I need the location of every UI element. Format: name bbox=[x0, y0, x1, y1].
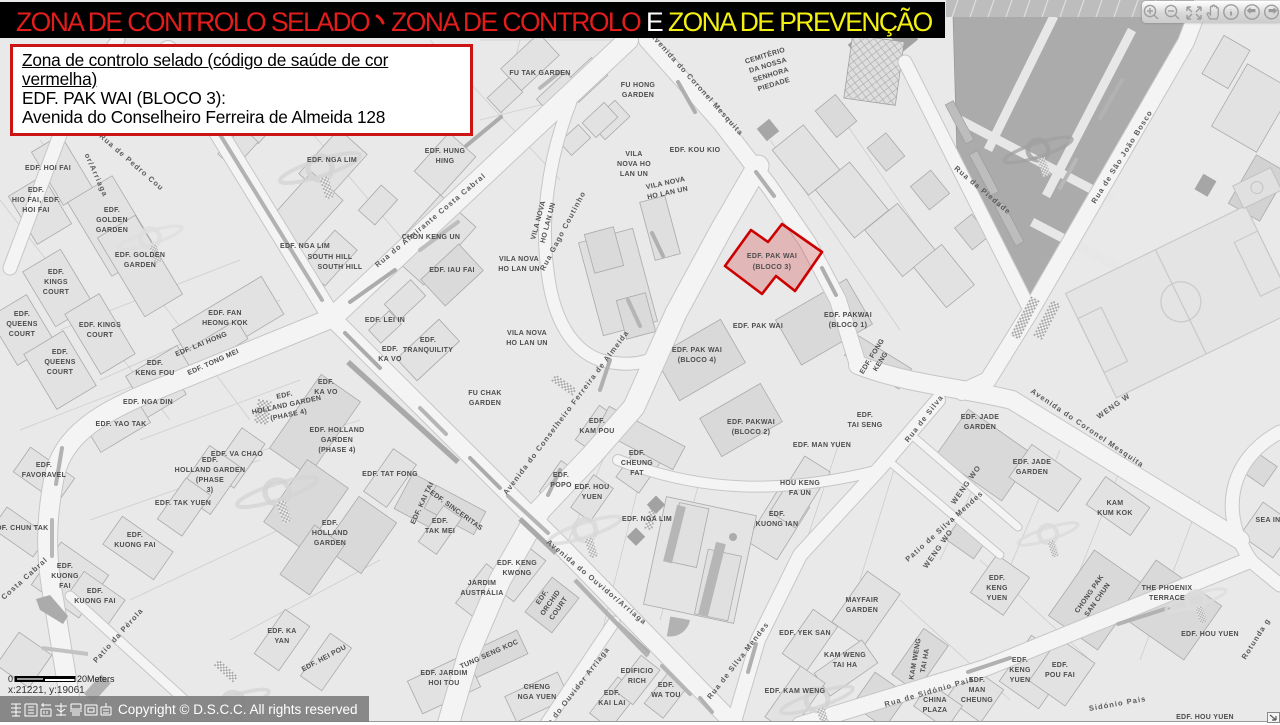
svg-text:EDF. HOI FAI: EDF. HOI FAI bbox=[25, 165, 71, 172]
svg-text:EDF.KENGYUEN: EDF.KENGYUEN bbox=[1009, 657, 1031, 684]
svg-text:EDF.KENGYUEN: EDF.KENGYUEN bbox=[986, 575, 1008, 602]
svg-text:0: 0 bbox=[8, 674, 13, 684]
svg-text:EDF. KOU KIO: EDF. KOU KIO bbox=[670, 147, 721, 154]
svg-text:EDF. NGA LIM: EDF. NGA LIM bbox=[307, 157, 357, 164]
svg-text:EDF. LEI IN: EDF. LEI IN bbox=[365, 317, 405, 324]
svg-text:EDF. KAM WENG: EDF. KAM WENG bbox=[765, 688, 826, 695]
svg-text:EDF. VA CHAO: EDF. VA CHAO bbox=[211, 451, 263, 458]
svg-text:EDF. YEK SAN: EDF. YEK SAN bbox=[779, 630, 831, 637]
svg-text:EDF. HOU YUEN: EDF. HOU YUEN bbox=[1181, 631, 1239, 638]
svg-text:EDF. TAK YUEN: EDF. TAK YUEN bbox=[155, 500, 211, 507]
svg-text:EDF. CHUN TAK: EDF. CHUN TAK bbox=[0, 525, 49, 532]
svg-text:EDF. IAU FAI: EDF. IAU FAI bbox=[429, 267, 475, 274]
svg-text:SOUTH HILL: SOUTH HILL bbox=[318, 264, 363, 271]
svg-text:SEA IN: SEA IN bbox=[1256, 517, 1280, 524]
svg-text:EDF. NGA LIM: EDF. NGA LIM bbox=[280, 243, 330, 250]
svg-text:EDF. MAN YUEN: EDF. MAN YUEN bbox=[793, 442, 851, 449]
svg-text:EDF. HOU YUEN: EDF. HOU YUEN bbox=[1176, 714, 1234, 721]
svg-text:EDF. PAK WAI: EDF. PAK WAI bbox=[733, 323, 783, 330]
svg-text:EDF. TAT FONG: EDF. TAT FONG bbox=[362, 471, 418, 478]
svg-text:SOUTH HILL: SOUTH HILL bbox=[308, 254, 353, 261]
svg-text:FU TAK GARDEN: FU TAK GARDEN bbox=[509, 70, 570, 77]
svg-text:EDF. YAO TAK: EDF. YAO TAK bbox=[96, 421, 147, 428]
svg-text:20Meters: 20Meters bbox=[77, 674, 115, 684]
svg-text:EDF. NGA DIN: EDF. NGA DIN bbox=[123, 399, 173, 406]
svg-text:EDF. NGA LIM: EDF. NGA LIM bbox=[622, 516, 672, 523]
